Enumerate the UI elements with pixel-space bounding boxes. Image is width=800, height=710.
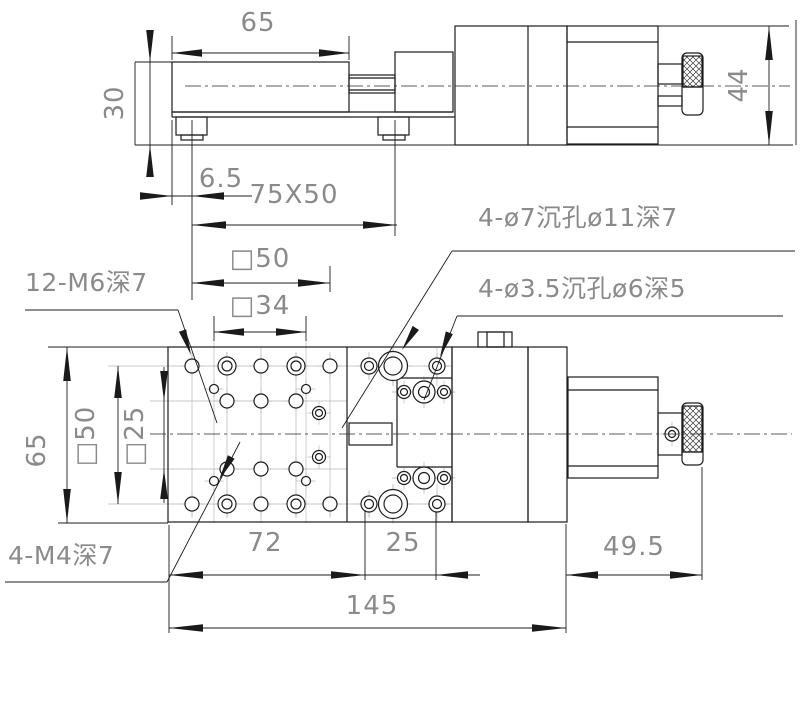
dimension-arrow bbox=[160, 469, 168, 499]
clamp-tab bbox=[478, 332, 512, 347]
dimension-arrow bbox=[146, 145, 154, 177]
dimension-arrow bbox=[160, 371, 168, 401]
dimension-arrow bbox=[146, 30, 154, 62]
dimension-arrow bbox=[436, 571, 468, 579]
dimension-arrow bbox=[363, 221, 397, 229]
hole bbox=[379, 490, 408, 519]
dim-49-5: 49.5 bbox=[603, 532, 665, 562]
hole bbox=[254, 394, 268, 408]
hole bbox=[398, 386, 411, 399]
hole bbox=[287, 357, 305, 375]
plan-outline bbox=[168, 332, 703, 522]
dim-25: 25 bbox=[385, 528, 420, 558]
hole bbox=[210, 385, 219, 394]
dimension-arrow bbox=[63, 347, 71, 381]
hole bbox=[313, 451, 326, 464]
note-12-m6: 12-M6深7 bbox=[25, 268, 148, 297]
bracket-plan bbox=[452, 347, 528, 522]
hole bbox=[254, 497, 268, 511]
dimension-arrow bbox=[298, 279, 330, 287]
dimension-arrow bbox=[114, 366, 122, 398]
dim-height-30: 30 bbox=[100, 85, 130, 120]
elevation-outline bbox=[172, 26, 703, 145]
hole bbox=[185, 497, 199, 511]
hole bbox=[254, 359, 268, 373]
dimension-arrow bbox=[140, 192, 172, 200]
hole bbox=[302, 385, 311, 394]
dimension-arrow bbox=[172, 49, 202, 57]
note-4-m4: 4-M4深7 bbox=[8, 541, 114, 570]
dim-sq50-top: □50 bbox=[230, 244, 291, 274]
dimension-arrow bbox=[276, 328, 306, 336]
hole bbox=[287, 495, 305, 513]
dimension-arrow bbox=[440, 331, 453, 357]
drawing-svg: 65 30 44 6.5 75X50 bbox=[0, 0, 800, 710]
dimension-arrow bbox=[214, 328, 244, 336]
hole bbox=[313, 407, 326, 420]
dim-height-65-plan: 65 bbox=[22, 432, 52, 467]
dim-width-65: 65 bbox=[240, 8, 275, 38]
hole bbox=[438, 472, 451, 485]
dim-145: 145 bbox=[346, 591, 399, 621]
dimension-arrow bbox=[765, 26, 773, 60]
hole bbox=[429, 496, 445, 512]
dimension-arrow bbox=[402, 326, 419, 350]
dimension-arrow bbox=[192, 221, 226, 229]
dimension-arrow bbox=[670, 571, 702, 579]
dimension-arrow bbox=[169, 624, 203, 632]
technical-drawing: 65 30 44 6.5 75X50 bbox=[0, 0, 800, 710]
label-plate-75x50: 75X50 bbox=[250, 180, 339, 210]
knurl-texture bbox=[683, 56, 702, 87]
micrometer-body bbox=[567, 26, 658, 144]
dimension-arrow bbox=[169, 571, 203, 579]
dimension-arrow bbox=[192, 279, 224, 287]
dim-sq50-left: □50 bbox=[71, 406, 101, 467]
dimension-arrow bbox=[532, 624, 566, 632]
bracket bbox=[455, 26, 567, 145]
note-4-cbore35: 4-ø3.5沉孔ø6深5 bbox=[478, 274, 686, 303]
hole bbox=[379, 352, 408, 381]
hole bbox=[413, 467, 435, 489]
hole bbox=[254, 462, 268, 476]
note-4-cbore7: 4-ø7沉孔ø11深7 bbox=[478, 203, 678, 232]
hole bbox=[302, 477, 311, 486]
hole bbox=[289, 462, 303, 476]
step-block bbox=[395, 52, 453, 112]
dim-sq25-left: □25 bbox=[120, 406, 150, 467]
hole bbox=[218, 495, 236, 513]
dimension-arrow bbox=[114, 472, 122, 504]
plan-view: □50 □34 12-M6深7 4-ø7沉孔ø11深7 4-ø3.5沉孔ø6深5… bbox=[5, 203, 795, 633]
hole bbox=[218, 357, 236, 375]
dimension-arrow bbox=[63, 489, 71, 523]
dimension-arrow bbox=[319, 49, 349, 57]
hole bbox=[361, 496, 377, 512]
hole bbox=[289, 394, 303, 408]
hole bbox=[323, 497, 337, 511]
dim-offset-6-5: 6.5 bbox=[199, 164, 243, 194]
micrometer-body-plan bbox=[568, 377, 658, 478]
dimension-arrow bbox=[331, 571, 365, 579]
hole bbox=[398, 472, 411, 485]
base-plate bbox=[168, 347, 452, 522]
hole bbox=[361, 358, 377, 374]
dimension-arrow bbox=[566, 571, 598, 579]
dim-72: 72 bbox=[247, 528, 282, 558]
hole bbox=[210, 477, 219, 486]
dim-sq34: □34 bbox=[230, 291, 291, 321]
dim-height-44: 44 bbox=[724, 67, 754, 102]
elevation-view: 65 30 44 6.5 75X50 bbox=[100, 8, 796, 341]
knurl-texture-plan bbox=[683, 406, 702, 452]
dimension-arrow bbox=[765, 111, 773, 145]
hole bbox=[323, 359, 337, 373]
leader-cbore35 bbox=[424, 316, 783, 400]
hole bbox=[438, 386, 451, 399]
hole bbox=[220, 394, 234, 408]
